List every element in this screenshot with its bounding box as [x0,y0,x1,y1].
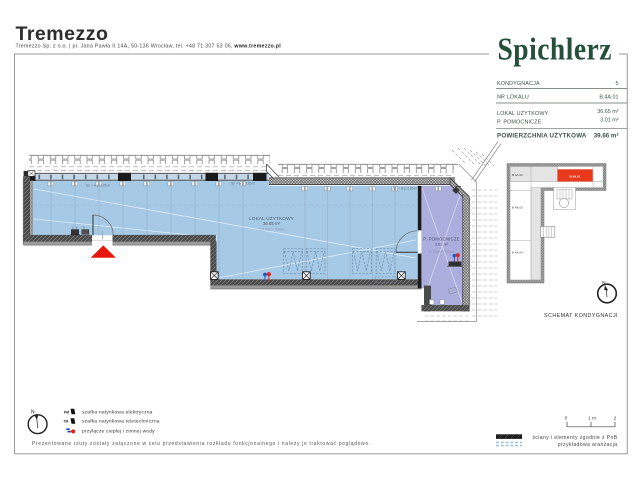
svg-text:0: 0 [565,416,568,422]
svg-text:TM: TM [63,420,68,424]
svg-text:2: 2 [614,416,617,422]
svg-text:3.01 m²: 3.01 m² [600,118,618,124]
svg-text:Spichlerz: Spichlerz [498,31,612,66]
svg-text:LOKAL UŻYTKOWY: LOKAL UŻYTKOWY [249,215,295,221]
svg-text:przyłącze ciepłej i zimnej wod: przyłącze ciepłej i zimnej wody [82,429,155,435]
svg-text:LOKAL UŻYTKOWY: LOKAL UŻYTKOWY [497,110,549,117]
svg-text:PM: PM [64,410,69,414]
svg-text:B.4A.04: B.4A.04 [512,251,523,255]
svg-text:Prezentowane rzuty zostały zał: Prezentowane rzuty zostały załączone w c… [32,441,371,447]
svg-text:P. POMOCNICZE: P. POMOCNICZE [497,120,542,126]
svg-text:ściany i elementy zgodnie z Pn: ściany i elementy zgodnie z PnB [532,435,617,441]
svg-text:przykładowa aranżacja: przykładowa aranżacja [558,442,618,448]
svg-text:NR LOKALU: NR LOKALU [497,95,529,101]
svg-text:SCHEMAT KONDYGNACJI: SCHEMAT KONDYGNACJI [544,313,618,319]
svg-text:B.4A.01: B.4A.01 [569,175,580,179]
svg-text:36.65 m²: 36.65 m² [597,109,618,115]
svg-text:h: 2,20m – 2,60m: h: 2,20m – 2,60m [429,250,453,254]
svg-text:Tremezzo: Tremezzo [16,23,109,45]
svg-text:B.4A.02: B.4A.02 [512,173,523,177]
svg-text:N: N [602,280,605,285]
svg-text:hp: + w.p. 0,85 m: hp: + w.p. 0,85 m [86,184,111,188]
svg-text:3.01 m²: 3.01 m² [435,241,449,246]
svg-text:KONDYGNACJA: KONDYGNACJA [497,81,540,87]
svg-text:B.4A.01: B.4A.01 [599,95,618,101]
svg-text:36.65 m²: 36.65 m² [263,221,281,226]
svg-text:5: 5 [616,81,619,87]
svg-text:szafka natynkowa teletechniczn: szafka natynkowa teletechniczna [82,419,160,425]
svg-text:Tremezzo Sp. z o.o. | pl. Jana: Tremezzo Sp. z o.o. | pl. Jana Pawła II … [16,44,282,50]
svg-text:POWIERZCHNIA UŻYTKOWA: POWIERZCHNIA UŻYTKOWA [497,133,587,140]
svg-text:hp: + w.p. 0,85 m: hp: + w.p. 0,85 m [393,187,418,191]
svg-text:N: N [31,410,35,416]
svg-text:39.66 m²: 39.66 m² [594,133,619,140]
svg-text:szafka natynkowa elektryczna: szafka natynkowa elektryczna [82,409,153,415]
svg-text:1 m: 1 m [588,416,596,422]
svg-text:h: 2,20m – 2,60m: h: 2,20m – 2,60m [259,227,285,231]
svg-text:B.4A.03: B.4A.03 [512,206,523,210]
svg-text:hp: + w.p. 0,85 m: hp: + w.p. 0,85 m [231,182,256,186]
